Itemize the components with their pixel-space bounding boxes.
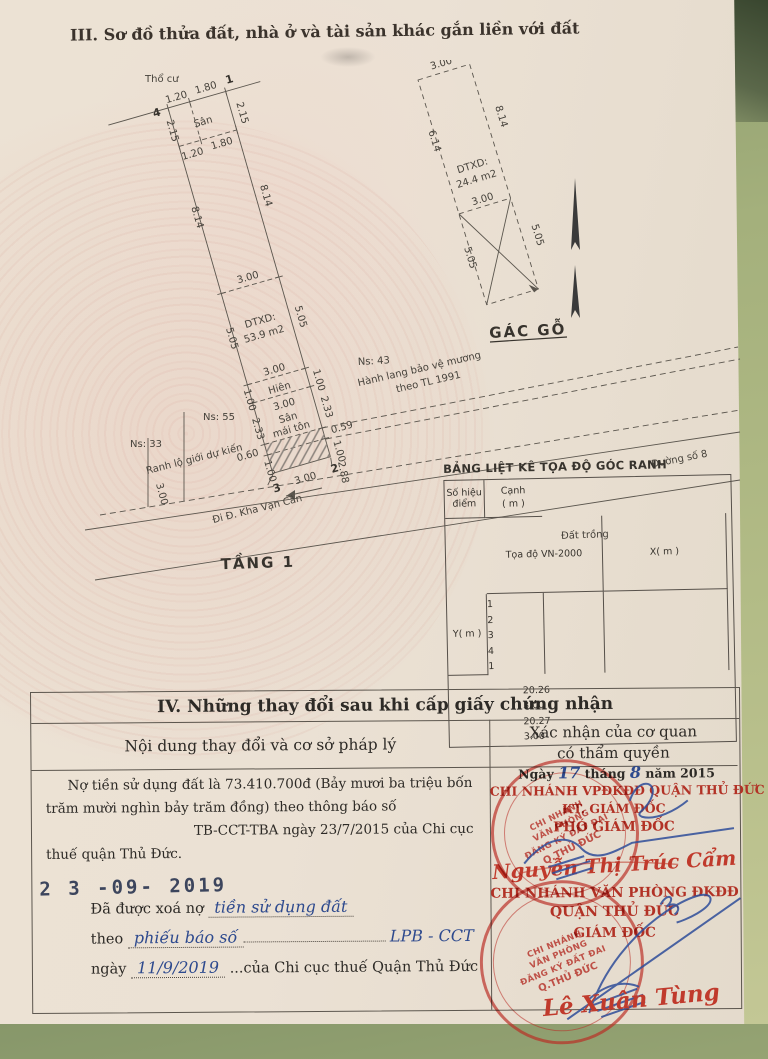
corner-label-3: 3: [271, 481, 282, 496]
dim: 8.14: [257, 183, 274, 207]
dim: 5.05: [461, 246, 478, 271]
dim: 1.20: [181, 146, 205, 163]
corner-label-1: 1: [224, 72, 235, 87]
ns43-label: Ns: 43: [358, 355, 391, 368]
dim: 2.15: [233, 101, 250, 125]
dim: 1.80: [210, 136, 234, 153]
dim: 3.00: [429, 60, 454, 72]
dim: 3.00: [153, 482, 169, 506]
col-header-edge: Cạnh ( m ): [484, 479, 542, 518]
dim: 5.05: [292, 305, 309, 329]
dim: 1.20: [164, 89, 188, 106]
point-numbers: 12 34 1: [487, 593, 546, 675]
signature-stroke: [630, 783, 688, 817]
dim: 2.33: [249, 417, 266, 441]
gac-go-group: 3.00 6.14 8.14 DTXD: 24.4 m2 3.00 5.05 5…: [406, 60, 558, 309]
dim: 3.00: [236, 270, 260, 287]
col-header-y: Y( m ): [447, 594, 489, 675]
dim: 2.88: [335, 460, 350, 484]
dim: 6.14: [426, 129, 443, 154]
dim: 3.00: [262, 362, 286, 379]
x-values-empty: [544, 592, 606, 674]
dim: 8.14: [188, 205, 205, 229]
dim: 8.14: [492, 104, 509, 129]
dim: 1.00: [241, 388, 258, 412]
dim: 0.59: [330, 420, 354, 437]
col-header-coord: Tọa độ VN-2000: [485, 516, 604, 594]
dim: 3.00: [471, 191, 496, 208]
tho-cu-label: Thổ cư: [144, 72, 179, 85]
san-label: Sân: [192, 113, 213, 130]
dim: 5.05: [529, 223, 546, 248]
dim: 2.33: [318, 395, 335, 419]
dim: 5.05: [223, 326, 240, 350]
dim: 1.00: [310, 368, 327, 392]
tang1-label: TẦNG 1: [220, 550, 295, 574]
col-header-point: Số hiệu điểm: [444, 480, 485, 519]
col-header-x: X( m ): [602, 513, 728, 592]
ns33-label: Ns: 33: [130, 439, 162, 450]
section4-table: IV. Những thay đổi sau khi cấp giấy chứn…: [30, 687, 742, 1014]
dim: 2.15: [164, 119, 181, 143]
north-arrow-icon: [571, 178, 580, 318]
ns55-label: Ns: 55: [203, 412, 235, 423]
hien-label: Hiên: [267, 379, 292, 397]
y-values-empty: [604, 589, 730, 672]
dim: 1.80: [194, 80, 218, 97]
corner-label-4: 4: [151, 105, 162, 120]
dim: 3.00: [293, 471, 317, 488]
